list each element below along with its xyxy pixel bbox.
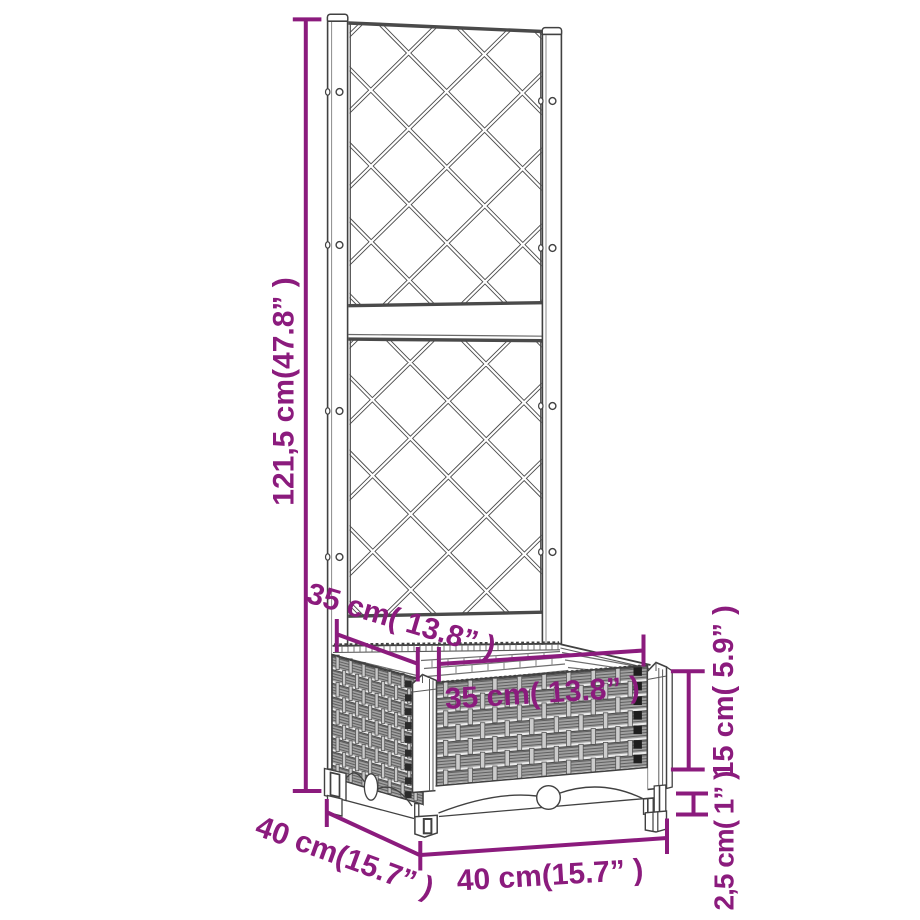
svg-text:15 cm( 5.9” ): 15 cm( 5.9” ) [708,605,740,777]
svg-text:2,5 cm( 1” ): 2,5 cm( 1” ) [709,772,740,911]
svg-text:121,5 cm(47.8” ): 121,5 cm(47.8” ) [268,277,301,505]
